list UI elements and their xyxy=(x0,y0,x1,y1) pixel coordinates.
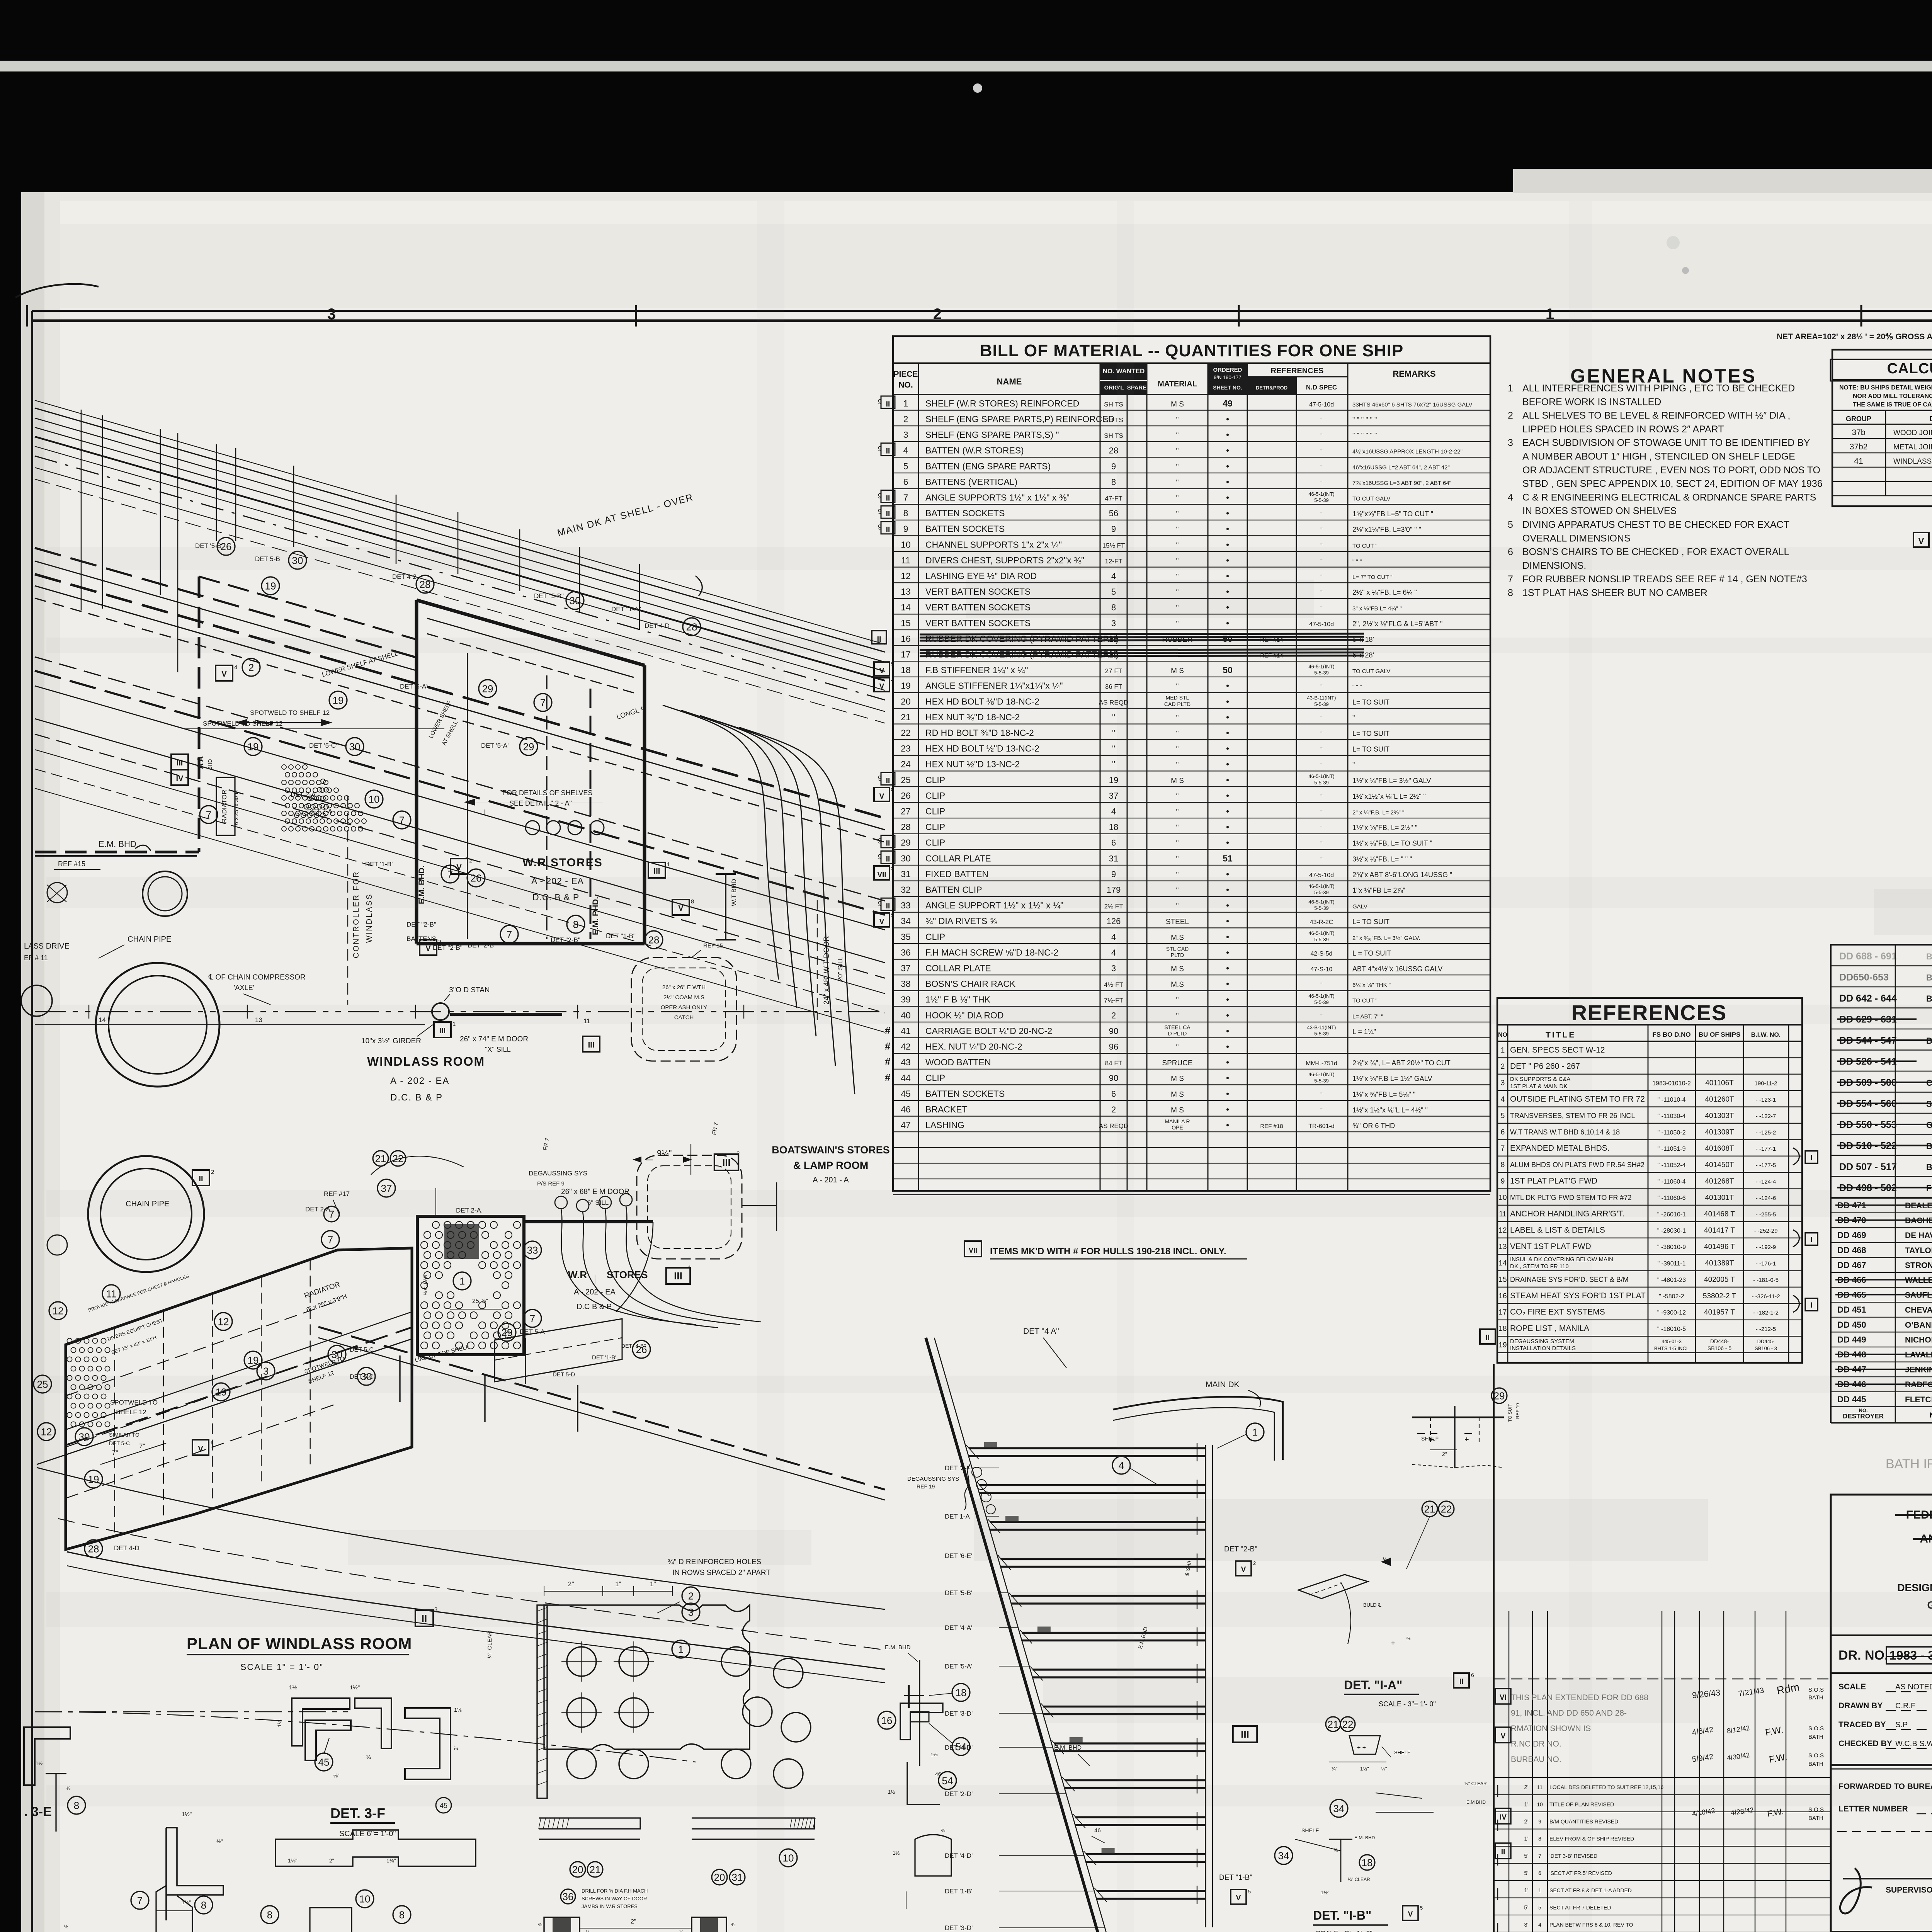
svg-text:46-5-1(INT): 46-5-1(INT) xyxy=(1308,663,1334,669)
svg-text:ALL INTERFERENCES WITH PIPI: ALL INTERFERENCES WITH PIPING , ETC TO B… xyxy=(1522,383,1795,394)
svg-text:43-R-2C: 43-R-2C xyxy=(1310,919,1333,926)
svg-text:29: 29 xyxy=(482,683,493,694)
svg-text:9: 9 xyxy=(1111,461,1116,471)
svg-text:SHELF (ENG SPARE PARTS,P) REI: SHELF (ENG SPARE PARTS,P) REINFORCED xyxy=(925,414,1114,424)
svg-text:•: • xyxy=(1226,571,1229,581)
svg-text:25 ⅞": 25 ⅞" xyxy=(472,1298,488,1304)
svg-text:5-5-39: 5-5-39 xyxy=(1314,497,1329,503)
svg-text:28: 28 xyxy=(420,578,431,590)
svg-text:29: 29 xyxy=(901,838,911,848)
svg-text:SPOTWELD TO SHELF 12: SPOTWELD TO SHELF 12 xyxy=(203,720,282,727)
svg-text:4: 4 xyxy=(1501,1095,1505,1104)
svg-text:46-5-1(INT): 46-5-1(INT) xyxy=(1308,993,1334,999)
svg-text:BATH: BATH xyxy=(1808,1761,1823,1767)
svg-text:E.M. BHD: E.M. BHD xyxy=(1054,1745,1082,1751)
svg-text:DRAWN BY: DRAWN BY xyxy=(1838,1701,1883,1710)
svg-text:MATERIAL: MATERIAL xyxy=(1158,380,1197,388)
svg-text:15: 15 xyxy=(901,618,911,628)
svg-text:L = 1¼": L = 1¼" xyxy=(1352,1028,1376,1036)
svg-text:1½"x 1½"x ⅛"L L= 4½" ": 1½"x 1½"x ⅛"L L= 4½" " xyxy=(1352,1106,1428,1114)
svg-text:IN BOXES STOWED ON SHELVES: IN BOXES STOWED ON SHELVES xyxy=(1522,506,1677,517)
svg-text:BOATSWAIN'S STORES: BOATSWAIN'S STORES xyxy=(772,1144,889,1156)
svg-text:2" x ⁵⁄₁₆"FB. L= 3½" GAL: 2" x ⁵⁄₁₆"FB. L= 3½" GALV. xyxy=(1352,935,1420,941)
svg-text:": " xyxy=(1352,761,1355,769)
svg-text:BATTEN SOCKETS: BATTEN SOCKETS xyxy=(925,524,1005,534)
svg-text:PIECE: PIECE xyxy=(893,370,918,379)
svg-text:REFERENCES: REFERENCES xyxy=(1271,367,1324,375)
svg-text:24: 24 xyxy=(901,759,911,769)
svg-text:3: 3 xyxy=(1501,1079,1505,1087)
svg-text:" -39011-1: " -39011-1 xyxy=(1658,1260,1686,1267)
svg-text:DR. NO.: DR. NO. xyxy=(1838,1648,1888,1663)
svg-text:E.M. BHD: E.M. BHD xyxy=(885,1644,911,1651)
svg-text:23: 23 xyxy=(901,743,911,753)
svg-text:SHELF 12: SHELF 12 xyxy=(116,1408,146,1416)
svg-text:II: II xyxy=(199,1175,203,1183)
svg-text:8: 8 xyxy=(1501,1161,1505,1169)
svg-text:46-5-1(INT): 46-5-1(INT) xyxy=(1308,491,1334,497)
svg-text:DEGAUSSING SYS: DEGAUSSING SYS xyxy=(529,1170,587,1177)
svg-text:III: III xyxy=(588,1041,595,1049)
svg-text:•: • xyxy=(1226,932,1229,942)
svg-text:1⅛": 1⅛" xyxy=(386,1857,396,1864)
svg-text:": " xyxy=(1320,856,1323,863)
svg-text:1½: 1½ xyxy=(289,1684,297,1691)
svg-text:" -9300-12: " -9300-12 xyxy=(1657,1310,1686,1316)
svg-text:28: 28 xyxy=(901,822,911,832)
svg-text:•: • xyxy=(1226,461,1229,471)
svg-text:": " xyxy=(1320,715,1323,722)
svg-text:DE HAVEN: DE HAVEN xyxy=(1905,1231,1932,1240)
svg-text:4½"x16USSG APPROX LENGTH 10-2-: 4½"x16USSG APPROX LENGTH 10-2-22" xyxy=(1352,449,1463,455)
svg-text:1½": 1½" xyxy=(1360,1766,1369,1772)
svg-text:": " xyxy=(1320,1092,1323,1098)
svg-text:INSTALLATION DETAILS: INSTALLATION DETAILS xyxy=(1510,1345,1576,1352)
svg-text:II: II xyxy=(886,494,890,502)
svg-text:DD445-: DD445- xyxy=(1757,1338,1775,1344)
svg-text:DET 4-2: DET 4-2 xyxy=(392,573,417,580)
svg-text:DET '4-D': DET '4-D' xyxy=(945,1852,973,1859)
svg-text:REMARKS: REMARKS xyxy=(1393,369,1435,379)
svg-text:SHELF: SHELF xyxy=(1394,1750,1410,1755)
svg-text:2': 2' xyxy=(1524,1818,1528,1825)
svg-text:3: 3 xyxy=(903,430,908,440)
svg-text:REF 19: REF 19 xyxy=(917,1483,935,1490)
svg-text:38: 38 xyxy=(901,979,911,989)
svg-text:36: 36 xyxy=(563,1891,574,1902)
svg-text:11: 11 xyxy=(106,1288,117,1299)
svg-text:DD 451: DD 451 xyxy=(1837,1305,1866,1315)
svg-text:¼: ¼ xyxy=(679,1929,684,1932)
svg-text:28: 28 xyxy=(648,934,660,946)
svg-text:•: • xyxy=(1226,618,1229,628)
svg-text:SB106 - 5: SB106 - 5 xyxy=(1708,1345,1731,1351)
svg-text:RADIATOR: RADIATOR xyxy=(221,790,228,823)
svg-text:": " xyxy=(1352,714,1355,722)
svg-text:9: 9 xyxy=(1111,524,1116,534)
svg-text:•: • xyxy=(1226,979,1229,989)
svg-text:DET '6-E': DET '6-E' xyxy=(945,1552,972,1560)
svg-text:1½: 1½ xyxy=(276,1719,282,1727)
svg-text:II: II xyxy=(886,840,890,848)
svg-text:41: 41 xyxy=(1854,457,1863,466)
svg-text:¼": ¼" xyxy=(1381,1766,1387,1772)
svg-text:2: 2 xyxy=(438,939,441,945)
svg-text:6: 6 xyxy=(1538,1870,1541,1876)
svg-text:18: 18 xyxy=(1362,1857,1373,1868)
svg-text:2": 2" xyxy=(631,1918,636,1925)
svg-text:III: III xyxy=(674,1270,682,1282)
svg-text:- -122-7: - -122-7 xyxy=(1756,1113,1776,1119)
svg-text:CLIP: CLIP xyxy=(925,806,945,816)
svg-text:5: 5 xyxy=(1248,1889,1251,1895)
svg-text:SHELF: SHELF xyxy=(1301,1827,1319,1833)
svg-text:1½": 1½" xyxy=(182,1811,192,1818)
svg-text:CARRIAGE BOLT ¼"D 20-NC-2: CARRIAGE BOLT ¼"D 20-NC-2 xyxy=(925,1026,1052,1036)
svg-text:L= TO SUIT: L= TO SUIT xyxy=(1352,698,1389,706)
svg-text:51: 51 xyxy=(1223,853,1233,863)
svg-text:30: 30 xyxy=(570,595,581,606)
svg-text:3" x ⅛"FB L= 4¼": 3" x ⅛"FB L= 4¼" " xyxy=(1352,605,1402,612)
svg-text:COLLAR PLATE: COLLAR PLATE xyxy=(925,963,991,973)
svg-text:MM-L-751d: MM-L-751d xyxy=(1306,1060,1337,1067)
svg-text:33HTS 46x60" 6 SHTS 76x72" 16U: 33HTS 46x60" 6 SHTS 76x72" 16USSG GALV xyxy=(1352,401,1473,408)
svg-text:NO: NO xyxy=(1498,1032,1507,1038)
svg-text:": " xyxy=(1320,480,1323,486)
svg-text:36: 36 xyxy=(901,947,911,957)
svg-text:45: 45 xyxy=(901,1088,911,1099)
svg-text:NO.: NO. xyxy=(1859,1407,1867,1413)
svg-text:BATTENS (VERTICAL): BATTENS (VERTICAL) xyxy=(925,477,1017,487)
svg-text:+: + xyxy=(1464,1435,1469,1444)
svg-text:": " xyxy=(1320,464,1323,471)
svg-text:•: • xyxy=(1226,430,1229,440)
svg-text:": " xyxy=(1320,511,1323,518)
svg-text:SPOTWELD TO SHELF 12: SPOTWELD TO SHELF 12 xyxy=(250,709,330,716)
svg-text:43-B-11(INT): 43-B-11(INT) xyxy=(1307,1024,1336,1030)
svg-text:LASHING: LASHING xyxy=(925,1120,964,1130)
svg-text:DK SUPPORTS & C&A: DK SUPPORTS & C&A xyxy=(1510,1076,1570,1083)
svg-text:V: V xyxy=(1236,1894,1241,1902)
svg-text:DET 5-C: DET 5-C xyxy=(109,1440,130,1446)
svg-text:9: 9 xyxy=(891,912,894,918)
svg-text:DET "2-B": DET "2-B" xyxy=(551,936,580,944)
svg-text:BRACKET: BRACKET xyxy=(925,1104,968,1114)
svg-text:REF 19: REF 19 xyxy=(1515,1403,1520,1419)
svg-text:19: 19 xyxy=(248,741,259,752)
svg-text:⅛ CLEAR: ⅛ CLEAR xyxy=(423,1274,428,1295)
svg-text:2½" x ⅛"FB. L= 6¼ ": 2½" x ⅛"FB. L= 6¼ " xyxy=(1352,588,1417,596)
svg-text:DD 468: DD 468 xyxy=(1837,1245,1866,1255)
svg-text:2" x ¼"F.B, L= 2⅜": 2" x ¼"F.B, L= 2⅜" " xyxy=(1352,809,1404,816)
svg-text:6: 6 xyxy=(1501,1128,1505,1136)
svg-text:BATH IRON WORKS CORP.: BATH IRON WORKS CORP. xyxy=(1926,952,1932,961)
svg-text:DET "5-B": DET "5-B" xyxy=(534,592,564,600)
svg-text:BILL OF MATERIAL -- QUANTITIES: BILL OF MATERIAL -- QUANTITIES FOR ONE S… xyxy=(980,341,1404,360)
svg-text:#: # xyxy=(885,1040,891,1052)
svg-text:ALL SHELVES TO BE LEVEL &: ALL SHELVES TO BE LEVEL & REINFORCED WIT… xyxy=(1522,410,1790,421)
svg-text:7: 7 xyxy=(328,1234,333,1245)
svg-text:4: 4 xyxy=(1111,932,1116,942)
svg-text:20: 20 xyxy=(901,696,911,706)
svg-text:¼" CLEAR: ¼" CLEAR xyxy=(486,1631,493,1658)
svg-text:" ": " " " xyxy=(1352,684,1362,690)
svg-text:#: # xyxy=(885,1056,891,1068)
svg-text:": " xyxy=(1176,447,1179,456)
svg-text:18: 18 xyxy=(956,1687,967,1698)
svg-text:'AXLE': 'AXLE' xyxy=(234,984,254,992)
svg-text:": " xyxy=(1320,731,1323,737)
svg-text:" -5802-2: " -5802-2 xyxy=(1659,1293,1684,1300)
svg-text:2": 2" xyxy=(329,1857,334,1864)
svg-text:": " xyxy=(1176,494,1179,502)
svg-text:A A: A A xyxy=(196,756,205,769)
svg-text:•: • xyxy=(1226,806,1229,816)
svg-text:STRONG: STRONG xyxy=(1905,1261,1932,1270)
svg-text:- -125-2: - -125-2 xyxy=(1756,1129,1776,1136)
svg-text:II: II xyxy=(886,510,890,518)
svg-text:9¼": 9¼" xyxy=(657,1148,672,1158)
svg-text:M S: M S xyxy=(1171,1106,1184,1114)
svg-text:6: 6 xyxy=(1111,838,1116,848)
svg-text:NAME: NAME xyxy=(997,377,1022,386)
svg-text:1983 - 30010 - 2: 1983 - 30010 - 2 xyxy=(1889,1648,1932,1662)
svg-text:2": 2" xyxy=(453,1745,459,1750)
svg-text:AS NOTED: AS NOTED xyxy=(1895,1683,1932,1691)
svg-text:HEX HD BOLT ⅜"D 18-NC-2: HEX HD BOLT ⅜"D 18-NC-2 xyxy=(925,696,1039,706)
svg-text:28: 28 xyxy=(88,1543,99,1554)
svg-text:" -11060-4: " -11060-4 xyxy=(1658,1179,1686,1185)
svg-text:•: • xyxy=(1226,696,1229,706)
svg-text:WOOD JOINER IN STORE RMS: WOOD JOINER IN STORE RMS xyxy=(1893,429,1932,437)
svg-text:1½"x ¼"FB L= 3½" GALV: 1½"x ¼"FB L= 3½" GALV xyxy=(1352,777,1431,784)
svg-text:33: 33 xyxy=(527,1244,538,1256)
svg-text:8: 8 xyxy=(1538,1836,1541,1842)
svg-text:20" SILL: 20" SILL xyxy=(837,956,844,981)
svg-text:" -11050-2: " -11050-2 xyxy=(1658,1129,1686,1136)
svg-text:7: 7 xyxy=(399,814,405,826)
svg-text:HEX. NUT ¼"D 20-NC-2: HEX. NUT ¼"D 20-NC-2 xyxy=(925,1041,1022,1051)
svg-text:21: 21 xyxy=(590,1864,601,1875)
svg-text:DEGAUSSING SYS: DEGAUSSING SYS xyxy=(907,1476,959,1482)
svg-text:•: • xyxy=(1226,1073,1229,1083)
svg-text:2", 2½"x ⅛"FLG & L=5"ABT ": 2", 2½"x ⅛"FLG & L=5"ABT " xyxy=(1352,620,1442,628)
svg-text:. 3-E: . 3-E xyxy=(24,1804,52,1819)
svg-text:42-S-5d: 42-S-5d xyxy=(1311,951,1333,957)
svg-text:46-5-1(INT): 46-5-1(INT) xyxy=(1308,1071,1334,1077)
svg-text:LASS DRIVE: LASS DRIVE xyxy=(24,942,70,951)
svg-text:2⅝"x ¾", L= ABT 20½" TO CUT: 2⅝"x ¾", L= ABT 20½" TO CUT xyxy=(1352,1059,1451,1067)
svg-text:- -326-11-2: - -326-11-2 xyxy=(1752,1293,1780,1300)
svg-text:2: 2 xyxy=(903,414,908,424)
svg-text:47-5-10d: 47-5-10d xyxy=(1309,401,1334,408)
svg-text:BATTEN SOCKETS: BATTEN SOCKETS xyxy=(925,1088,1005,1099)
svg-text:13: 13 xyxy=(901,587,911,597)
svg-text:FOR RUBBER NONSLIP TREADS: FOR RUBBER NONSLIP TREADS SEE REF # 14 ,… xyxy=(1522,574,1807,585)
svg-text:W.T TRANS W.T BHD 6,10,14 & 18: W.T TRANS W.T BHD 6,10,14 & 18 xyxy=(1510,1128,1620,1136)
svg-text:REF #15: REF #15 xyxy=(58,860,85,868)
svg-text:27: 27 xyxy=(901,806,911,816)
svg-text:6: 6 xyxy=(903,477,908,487)
svg-text:1: 1 xyxy=(1508,383,1513,394)
svg-text:DET 2-A: DET 2-A xyxy=(307,808,333,815)
svg-text:": " xyxy=(1320,762,1323,769)
svg-text:BATTENS: BATTENS xyxy=(406,935,436,942)
svg-text:PLAN OF WINDLASS ROOM: PLAN OF WINDLASS ROOM xyxy=(187,1634,412,1653)
svg-text:R.NC DR NO.: R.NC DR NO. xyxy=(1511,1740,1561,1748)
svg-text:1⅛: 1⅛ xyxy=(454,1707,462,1713)
svg-text:V: V xyxy=(879,683,884,691)
svg-text:DK , STEM TO FR 110: DK , STEM TO FR 110 xyxy=(1510,1263,1569,1270)
svg-text:" -4801-23: " -4801-23 xyxy=(1657,1277,1686,1283)
svg-text:": " xyxy=(1320,747,1323,753)
svg-text:2: 2 xyxy=(211,1169,214,1175)
svg-text:26" x 74" E M DOOR: 26" x 74" E M DOOR xyxy=(460,1035,528,1043)
svg-text:2: 2 xyxy=(1501,1063,1505,1071)
svg-text:46: 46 xyxy=(935,1771,941,1777)
svg-text:1983-01010-2: 1983-01010-2 xyxy=(1652,1080,1691,1087)
svg-text:- -177-5: - -177-5 xyxy=(1756,1162,1776,1169)
svg-text:": " xyxy=(1320,433,1323,439)
svg-text:1½"x1½"x ⅛"L L= 2½" ": 1½"x1½"x ⅛"L L= 2½" " xyxy=(1352,793,1426,800)
svg-text:THE SAME IS TRUE OF CALCULATED: THE SAME IS TRUE OF CALCULATED WEIGHTS. xyxy=(1853,401,1932,408)
svg-text:CHEVALIER: CHEVALIER xyxy=(1905,1306,1932,1315)
svg-text:⅜: ⅜ xyxy=(731,1922,735,1927)
svg-text:COLLAR PLATE: COLLAR PLATE xyxy=(925,853,991,863)
svg-text:•: • xyxy=(1226,492,1229,502)
svg-text:401450T: 401450T xyxy=(1705,1161,1734,1169)
svg-text:STORES: STORES xyxy=(607,1269,648,1281)
svg-text:26" x 26" E WTH: 26" x 26" E WTH xyxy=(662,984,706,991)
svg-text:V: V xyxy=(879,918,884,926)
svg-text:1: 1 xyxy=(903,398,908,408)
svg-text:4: 4 xyxy=(234,664,237,671)
svg-text:53802-2 T: 53802-2 T xyxy=(1703,1292,1736,1300)
svg-text:12: 12 xyxy=(1498,1226,1507,1235)
svg-text:•: • xyxy=(1226,995,1229,1005)
svg-text:BATH IRON WORKS CORP’N: BATH IRON WORKS CORP’N xyxy=(1926,994,1932,1003)
svg-text:30: 30 xyxy=(79,1431,90,1442)
svg-text:II: II xyxy=(886,777,890,785)
svg-text:SHELF (W.R STORES) REINFORC: SHELF (W.R STORES) REINFORCED xyxy=(925,398,1079,408)
svg-text:DD650-653: DD650-653 xyxy=(1839,972,1889,983)
svg-text:- -124-4: - -124-4 xyxy=(1756,1179,1776,1185)
svg-text:" -38010-9: " -38010-9 xyxy=(1657,1244,1686,1251)
svg-text:": " xyxy=(1176,526,1179,534)
svg-text:14: 14 xyxy=(1498,1259,1507,1267)
svg-text:CLIP: CLIP xyxy=(925,838,945,848)
svg-text:401268T: 401268T xyxy=(1705,1177,1734,1185)
svg-text:DET '3-D': DET '3-D' xyxy=(945,1710,973,1717)
svg-text:401260T: 401260T xyxy=(1705,1095,1734,1104)
svg-text:•: • xyxy=(1226,838,1229,848)
svg-text:12: 12 xyxy=(218,1316,229,1327)
svg-text:½: ½ xyxy=(64,1923,68,1929)
svg-text:1⅛"x ⅝"FB L= 5⅛" ": 1⅛"x ⅝"FB L= 5⅛" " xyxy=(1352,1090,1415,1098)
svg-text:DET '5-A': DET '5-A' xyxy=(945,1663,972,1670)
svg-text:DET '3-D': DET '3-D' xyxy=(945,1924,973,1932)
svg-text:": " xyxy=(1176,683,1179,691)
svg-text:DD 449: DD 449 xyxy=(1837,1335,1866,1344)
svg-text:4: 4 xyxy=(891,677,894,683)
svg-text:3: 3 xyxy=(263,1365,269,1377)
svg-text:445-01-3: 445-01-3 xyxy=(1662,1338,1682,1344)
svg-text:402005 T: 402005 T xyxy=(1704,1276,1735,1284)
svg-text:DD448-: DD448- xyxy=(1710,1338,1729,1344)
svg-text:BATH IRON WORKS CORP’N: BATH IRON WORKS CORP’N xyxy=(1926,1162,1932,1172)
svg-text:1": 1" xyxy=(615,1580,621,1588)
svg-text:46: 46 xyxy=(1094,1827,1101,1834)
svg-text:M S: M S xyxy=(1171,667,1184,675)
svg-text:1½: 1½ xyxy=(36,1760,43,1766)
svg-text:21: 21 xyxy=(375,1153,386,1164)
svg-text:III: III xyxy=(439,1027,446,1035)
svg-text:L= TO SUIT: L= TO SUIT xyxy=(1352,730,1389,737)
svg-text:1⅝"x⅝"FB L=5" TO CUT ": 1⅝"x⅝"FB L=5" TO CUT " xyxy=(1352,510,1433,518)
svg-text:⅛": ⅛" xyxy=(333,1772,340,1779)
svg-text:5-5-39: 5-5-39 xyxy=(1314,1078,1329,1083)
svg-text:": " xyxy=(1176,620,1179,628)
svg-text:DRILL FOR ⅝ DIA F.H MACH: DRILL FOR ⅝ DIA F.H MACH xyxy=(582,1888,648,1894)
svg-text:W.R STORES: W.R STORES xyxy=(522,856,603,869)
svg-text:6¼"x ⅛" THK: 6¼"x ⅛" THK " xyxy=(1352,982,1391,988)
svg-text:IN ROWS SPACED 2" APART: IN ROWS SPACED 2" APART xyxy=(672,1569,770,1577)
svg-text:5-5-39: 5-5-39 xyxy=(1314,1031,1329,1037)
svg-text:I: I xyxy=(1810,1301,1812,1310)
svg-text:F.B STIFFENER 1¼" x ¼": F.B STIFFENER 1¼" x ¼" xyxy=(925,665,1028,675)
svg-text:IV: IV xyxy=(1500,1813,1507,1821)
svg-text:TAYLOR: TAYLOR xyxy=(1905,1246,1932,1255)
svg-text:#: # xyxy=(885,1072,891,1083)
svg-text:12: 12 xyxy=(53,1305,64,1316)
svg-text:F.H MACH SCREW ⅝"D 18-NC-2: F.H MACH SCREW ⅝"D 18-NC-2 xyxy=(925,947,1058,957)
svg-text:2: 2 xyxy=(1253,1560,1256,1566)
svg-text:METAL JOINER IN STORE RMS: METAL JOINER IN STORE RMS xyxy=(1893,443,1932,451)
svg-text:S.O.S: S.O.S xyxy=(1808,1752,1824,1759)
svg-text:SUPERVISOR OF SHIPBUILDING: SUPERVISOR OF SHIPBUILDING , U.S.N xyxy=(1886,1886,1932,1895)
svg-text:5: 5 xyxy=(903,461,908,471)
svg-text:II: II xyxy=(1501,1848,1505,1856)
svg-text:2": 2" xyxy=(1442,1451,1447,1457)
svg-text:18: 18 xyxy=(1498,1325,1507,1333)
svg-text:7": 7" xyxy=(112,1449,118,1456)
svg-text:I: I xyxy=(1810,1236,1812,1244)
svg-text:" " " " " ": " " " " " " xyxy=(1352,432,1377,439)
svg-text:S.O.S: S.O.S xyxy=(1808,1687,1824,1693)
svg-text:10: 10 xyxy=(369,793,380,805)
svg-text:7: 7 xyxy=(1538,1853,1541,1859)
svg-text:V: V xyxy=(1408,1910,1413,1918)
svg-text:V: V xyxy=(879,793,884,801)
svg-text:" -11052-4: " -11052-4 xyxy=(1658,1162,1686,1169)
svg-text:HEX NUT ½"D 13-NC-2: HEX NUT ½"D 13-NC-2 xyxy=(925,759,1020,769)
svg-text:III: III xyxy=(722,1156,731,1168)
svg-text:EXPANDED METAL BHDS.: EXPANDED METAL BHDS. xyxy=(1510,1144,1610,1153)
svg-text:": " xyxy=(1320,825,1323,832)
svg-text:ITEMS MK'D WITH # FOR HULLS 19: ITEMS MK'D WITH # FOR HULLS 190-218 INCL… xyxy=(990,1246,1226,1257)
svg-text:⅜: ⅜ xyxy=(1334,1847,1338,1853)
svg-text:": " xyxy=(1320,794,1323,800)
svg-text:III: III xyxy=(654,867,660,876)
svg-text:2½" COAM M.S: 2½" COAM M.S xyxy=(663,994,704,1001)
svg-text:": " xyxy=(1176,808,1179,816)
svg-text:•: • xyxy=(1226,743,1229,753)
svg-text:12: 12 xyxy=(41,1426,52,1437)
svg-text:5-5-39: 5-5-39 xyxy=(1314,780,1329,786)
svg-text:19: 19 xyxy=(901,681,911,691)
svg-text:M S: M S xyxy=(1171,1075,1184,1083)
svg-text:1⅛": 1⅛" xyxy=(182,1899,191,1905)
